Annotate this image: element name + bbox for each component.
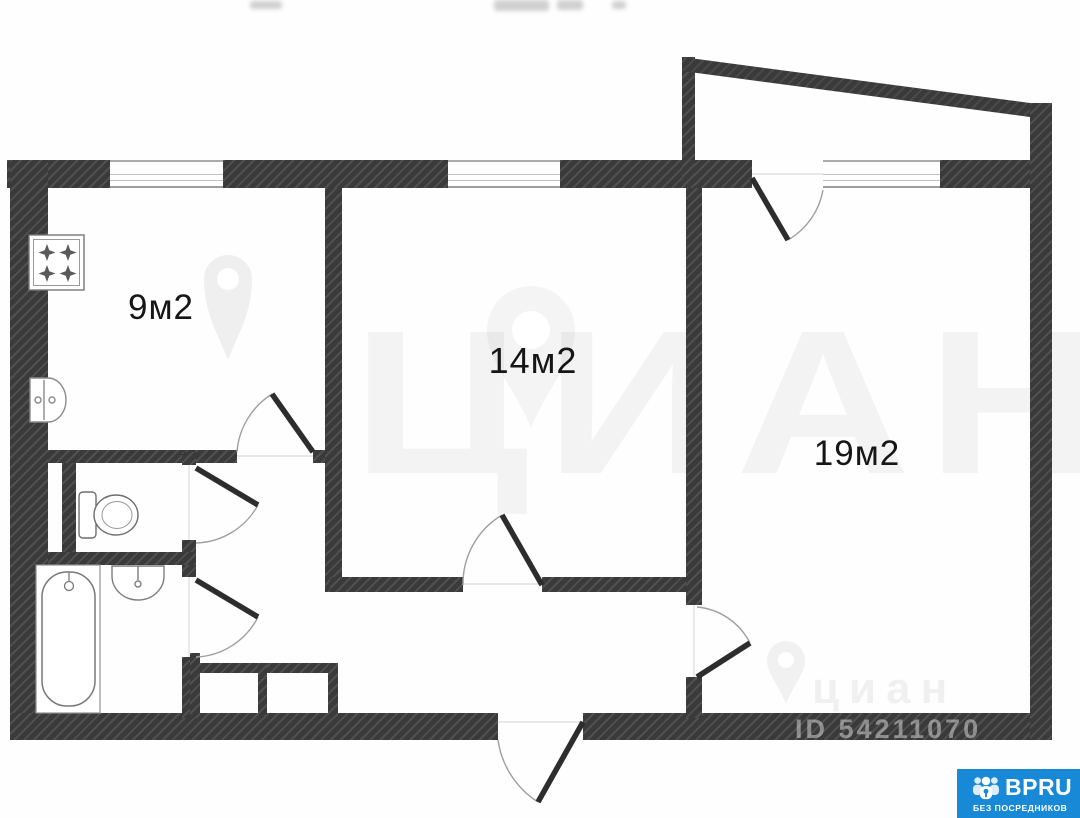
toilet-icon	[79, 492, 138, 538]
wall-wc-bath-divider	[48, 552, 196, 565]
people-lock-icon	[971, 775, 1001, 801]
map-pin-icon	[204, 255, 252, 360]
top-smudge	[612, 1, 626, 9]
wc-door-arc	[196, 505, 258, 543]
wall-bottom	[10, 713, 498, 740]
badge-title: BPRU	[1005, 776, 1072, 799]
wall-kitchen-bottom	[313, 450, 325, 463]
wall-room14-bottom	[330, 577, 463, 592]
wall-right	[1030, 103, 1052, 740]
room14-door-arc	[463, 515, 502, 585]
window-kitchen	[110, 160, 223, 188]
wall-top	[560, 160, 752, 188]
map-pin-icon	[767, 641, 805, 704]
kitchen-door	[272, 394, 313, 452]
sink-icon	[112, 566, 164, 600]
wall-room19-left	[686, 677, 702, 718]
floor-plan: ЦИАН циан	[0, 0, 1080, 818]
wall-wc-right	[182, 452, 196, 465]
window-balcony	[823, 160, 940, 188]
window-pane	[110, 174, 223, 181]
top-smudge	[557, 0, 583, 10]
room-label-kitchen: 9м2	[128, 288, 194, 328]
kitchen-door-arc	[237, 394, 272, 452]
wall-balcony-left	[682, 57, 695, 188]
wall-room19-left	[686, 188, 702, 605]
wall-closet	[258, 663, 267, 718]
wall-kitchen-bottom	[48, 450, 237, 463]
entrance-door-arc	[498, 740, 538, 802]
window-room14	[448, 160, 560, 188]
room-label-room14: 14м2	[489, 340, 578, 382]
wall-left	[10, 160, 48, 740]
wall-closet	[328, 663, 338, 718]
wall-vent-shaft	[62, 463, 76, 553]
badge-subtitle: БЕЗ ПОСРЕДНИКОВ	[973, 803, 1080, 813]
bpru-badge: BPRU БЕЗ ПОСРЕДНИКОВ	[957, 769, 1080, 818]
wc-door	[196, 468, 258, 505]
room14-door	[502, 515, 542, 585]
bathroom-door	[196, 580, 258, 617]
wall-top	[223, 160, 448, 188]
room19-door	[697, 643, 750, 677]
listing-id: ID 54211070	[795, 714, 981, 745]
window-pane	[448, 174, 560, 181]
room19-door-arc	[697, 607, 750, 643]
window-pane	[823, 174, 940, 181]
watermark-brand-small: циан	[812, 664, 957, 714]
bathroom-door-arc	[196, 617, 258, 657]
wall-kitchen-right	[325, 188, 342, 592]
watermark-brand-large: ЦИАН	[352, 300, 1080, 505]
wall-room14-bottom	[542, 577, 702, 592]
balcony-door	[752, 178, 788, 240]
room-label-room19: 19м2	[814, 434, 900, 474]
top-smudge	[250, 1, 282, 9]
top-smudge	[494, 0, 549, 11]
entrance-door	[538, 722, 583, 802]
balcony-door-arc	[788, 190, 823, 240]
